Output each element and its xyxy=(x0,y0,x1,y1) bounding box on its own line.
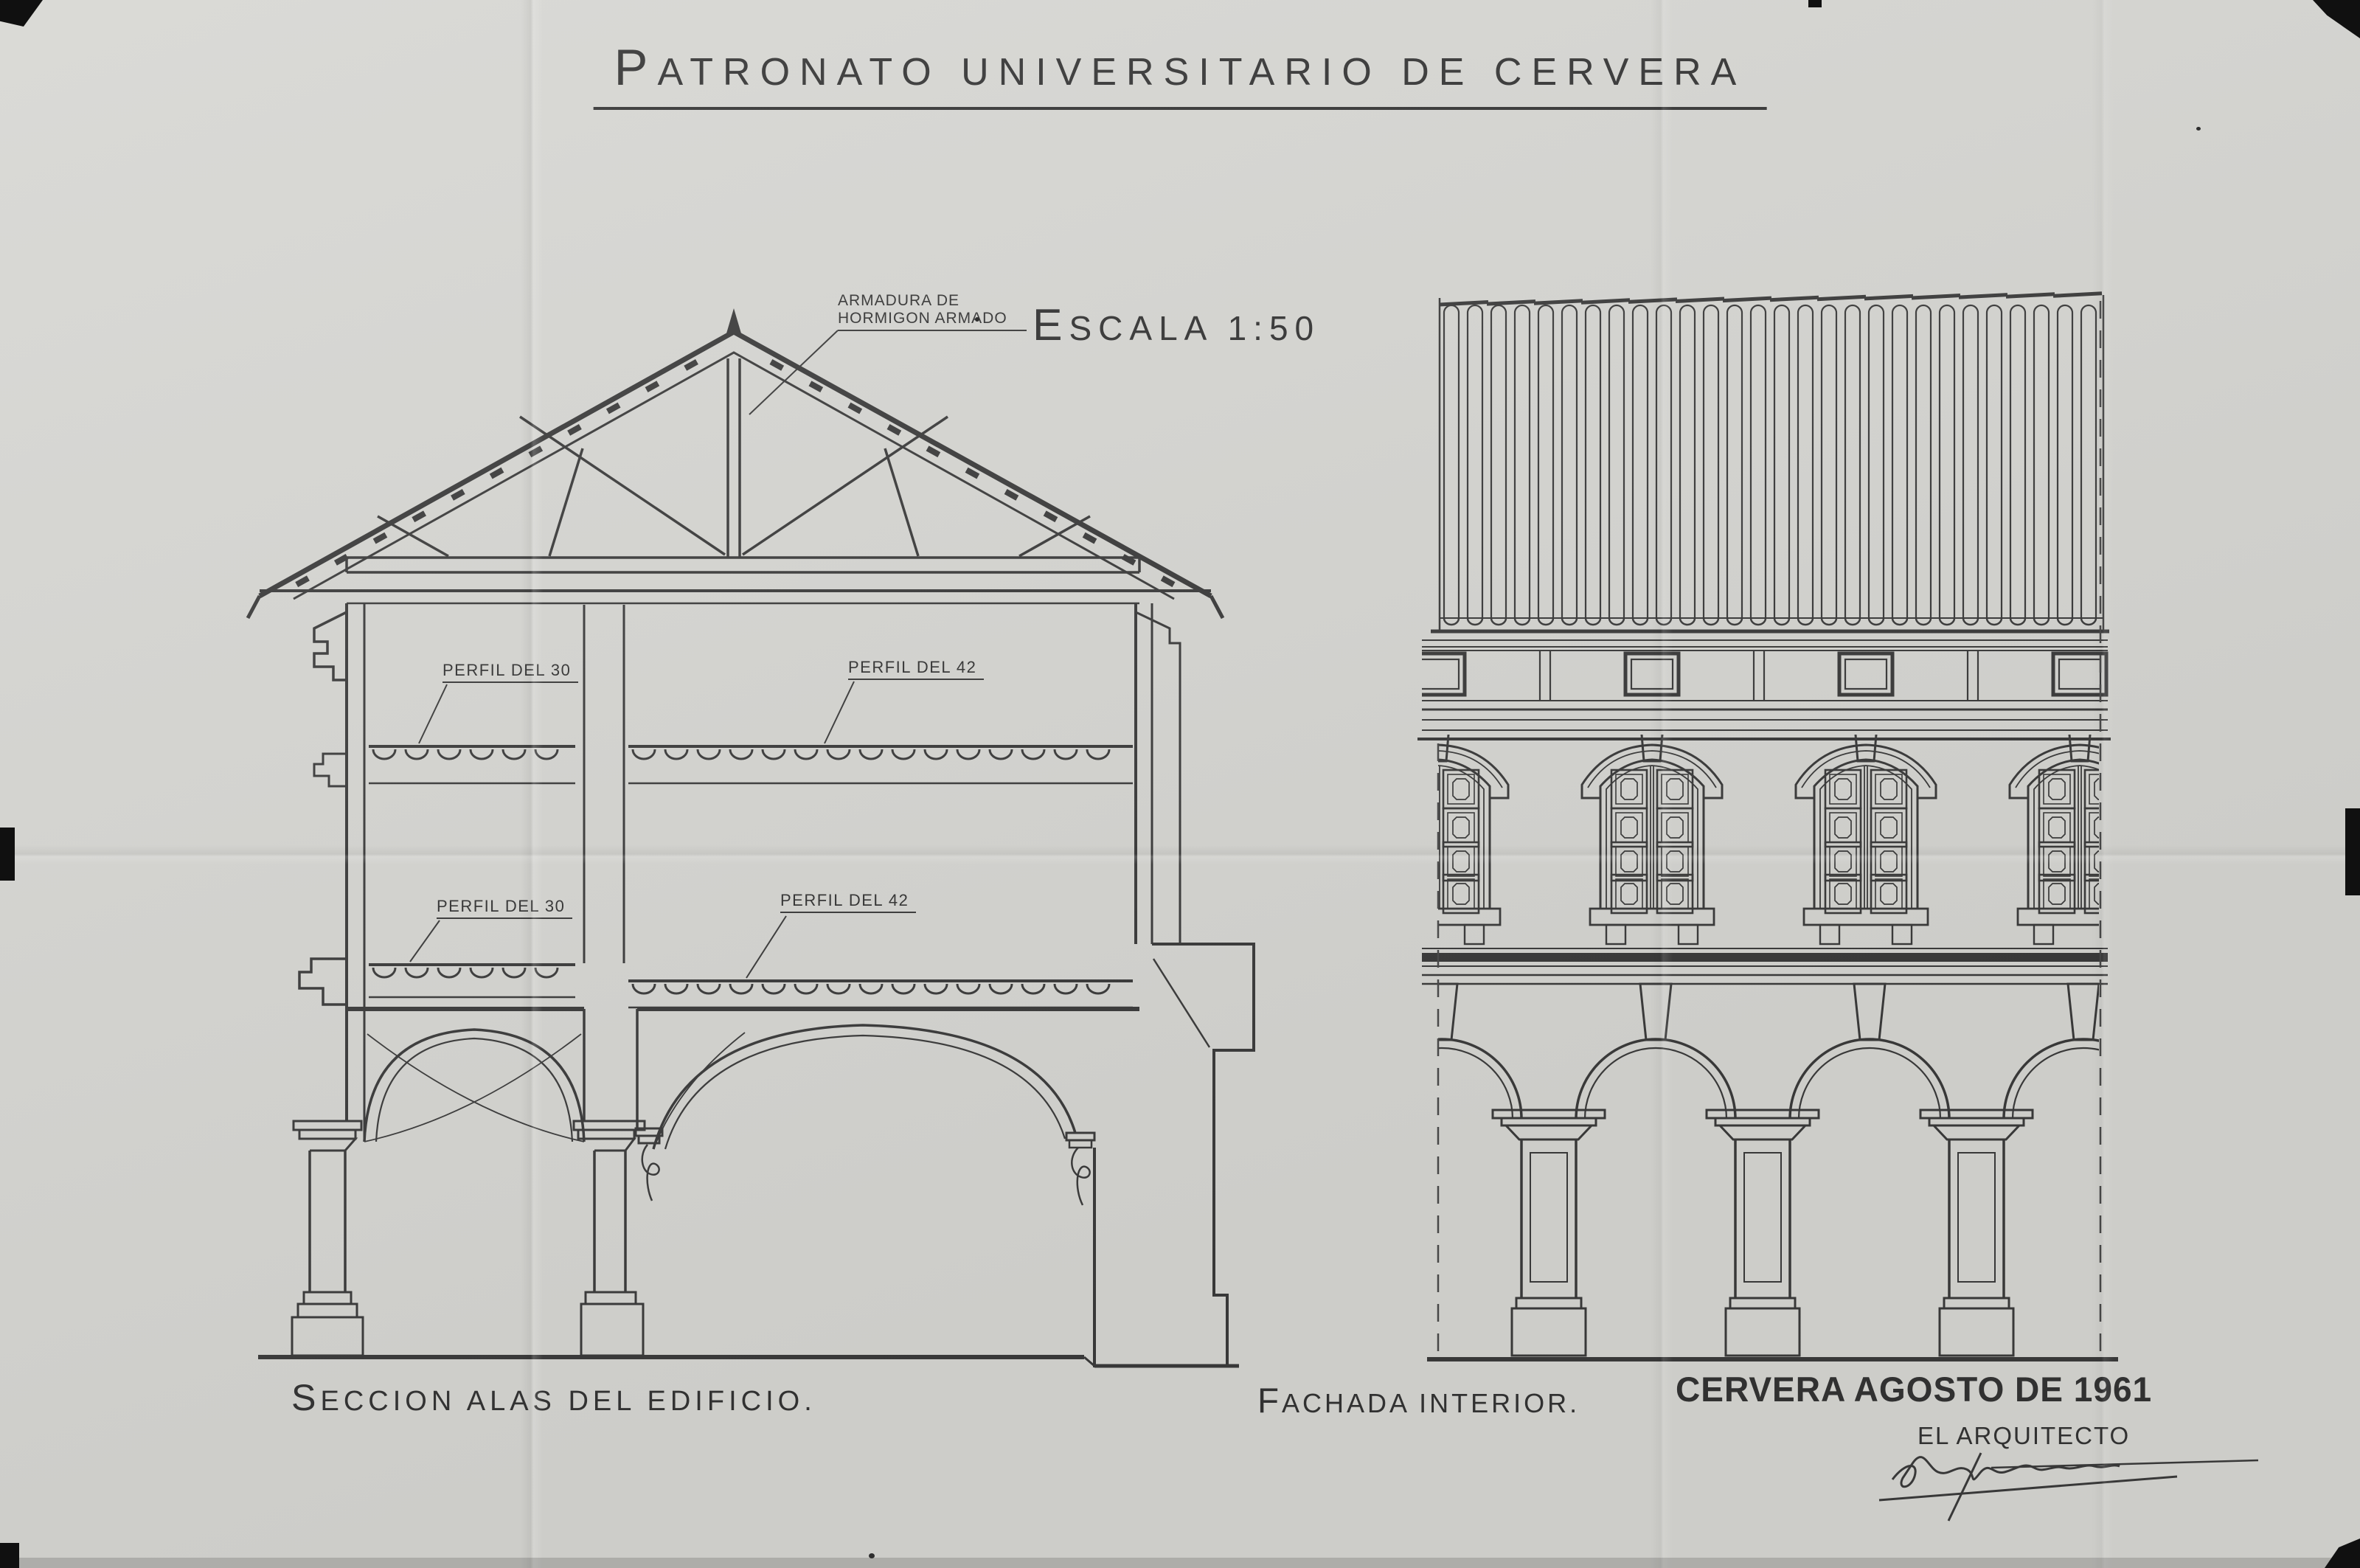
arched-window xyxy=(1796,708,1936,944)
scan-artifact xyxy=(2345,808,2360,895)
fold-crease xyxy=(1651,0,1673,1568)
scroll-corbel-pier xyxy=(642,1145,659,1201)
sheet-title: PATRONATO UNIVERSITARIO DE CERVERA xyxy=(594,38,1767,110)
roof-finial xyxy=(726,308,741,333)
section-drawing xyxy=(248,308,1254,1366)
arcade-pilaster xyxy=(1493,1110,1605,1356)
arch-keystone xyxy=(1854,984,1885,1040)
pier-center xyxy=(574,1009,662,1356)
cornice-left-mid xyxy=(314,754,347,786)
arcade-arch xyxy=(1362,1039,1521,1119)
drawing-canvas xyxy=(0,0,2360,1568)
section-caption: SECCION ALAS DEL EDIFICIO. xyxy=(291,1376,816,1419)
scan-speck xyxy=(2196,127,2201,131)
frieze-vents xyxy=(1412,651,2106,701)
scan-artifact xyxy=(0,828,15,881)
beam-label-lower-left: PERFIL DEL 30 xyxy=(437,897,572,919)
eave-cornice-right xyxy=(1136,612,1180,944)
beam-label-upper-left: PERFIL DEL 30 xyxy=(442,661,578,683)
column-left xyxy=(292,1121,363,1356)
scan-speck xyxy=(869,1553,875,1558)
facade-caption: FACHADA INTERIOR. xyxy=(1257,1381,1580,1421)
roof-tile-hatching xyxy=(1444,305,2096,625)
place-date: CERVERA AGOSTO DE 1961 xyxy=(1676,1369,2152,1409)
fold-crease xyxy=(2092,0,2114,1568)
facade-arcade xyxy=(1362,984,2163,1356)
beam-label-lower-right: PERFIL DEL 42 xyxy=(780,891,916,913)
eave-cornice-left xyxy=(314,612,347,680)
arcade-pilaster xyxy=(1707,1110,1819,1356)
scale-note: ESCALA 1:50 xyxy=(1032,299,1320,350)
roof-tile-battens xyxy=(296,361,1173,584)
section-arcade xyxy=(258,1009,1239,1366)
architect-signature xyxy=(1879,1453,2258,1521)
arcade-pilaster xyxy=(1920,1110,2033,1356)
vault-bay-right xyxy=(653,1025,1075,1149)
leader-lines xyxy=(410,330,854,978)
roof-ridge-sawtooth xyxy=(1440,294,2102,305)
scanned-sheet: { "sheet": { "title": "PATRONATO UNIVERS… xyxy=(0,0,2360,1568)
scan-speck xyxy=(975,317,979,322)
scan-artifact xyxy=(0,1543,19,1568)
facade-windows xyxy=(1368,708,2150,944)
floor-joist-vaults xyxy=(369,746,1133,1007)
facade-drawing xyxy=(1362,294,2163,1359)
vault-bay-left xyxy=(364,1030,584,1142)
arcade-arch xyxy=(2004,1039,2163,1119)
scan-edge-shadow xyxy=(0,1558,2360,1568)
fold-crease xyxy=(0,845,2360,864)
section-walls xyxy=(299,603,1254,1366)
truss-label: ARMADURA DE HORMIGON ARMADO xyxy=(838,292,1027,331)
string-course xyxy=(1422,953,2108,962)
fold-crease xyxy=(521,0,543,1568)
scroll-corbel-wall xyxy=(1066,1133,1094,1205)
beam-label-upper-right: PERFIL DEL 42 xyxy=(848,658,984,680)
scan-artifact xyxy=(1808,0,1822,7)
arch-keystone xyxy=(1426,984,1457,1040)
roof-truss xyxy=(347,358,1139,572)
cornice-left-low xyxy=(299,959,347,1005)
arcade-arch xyxy=(1790,1039,1949,1119)
arched-window xyxy=(2010,708,2150,944)
